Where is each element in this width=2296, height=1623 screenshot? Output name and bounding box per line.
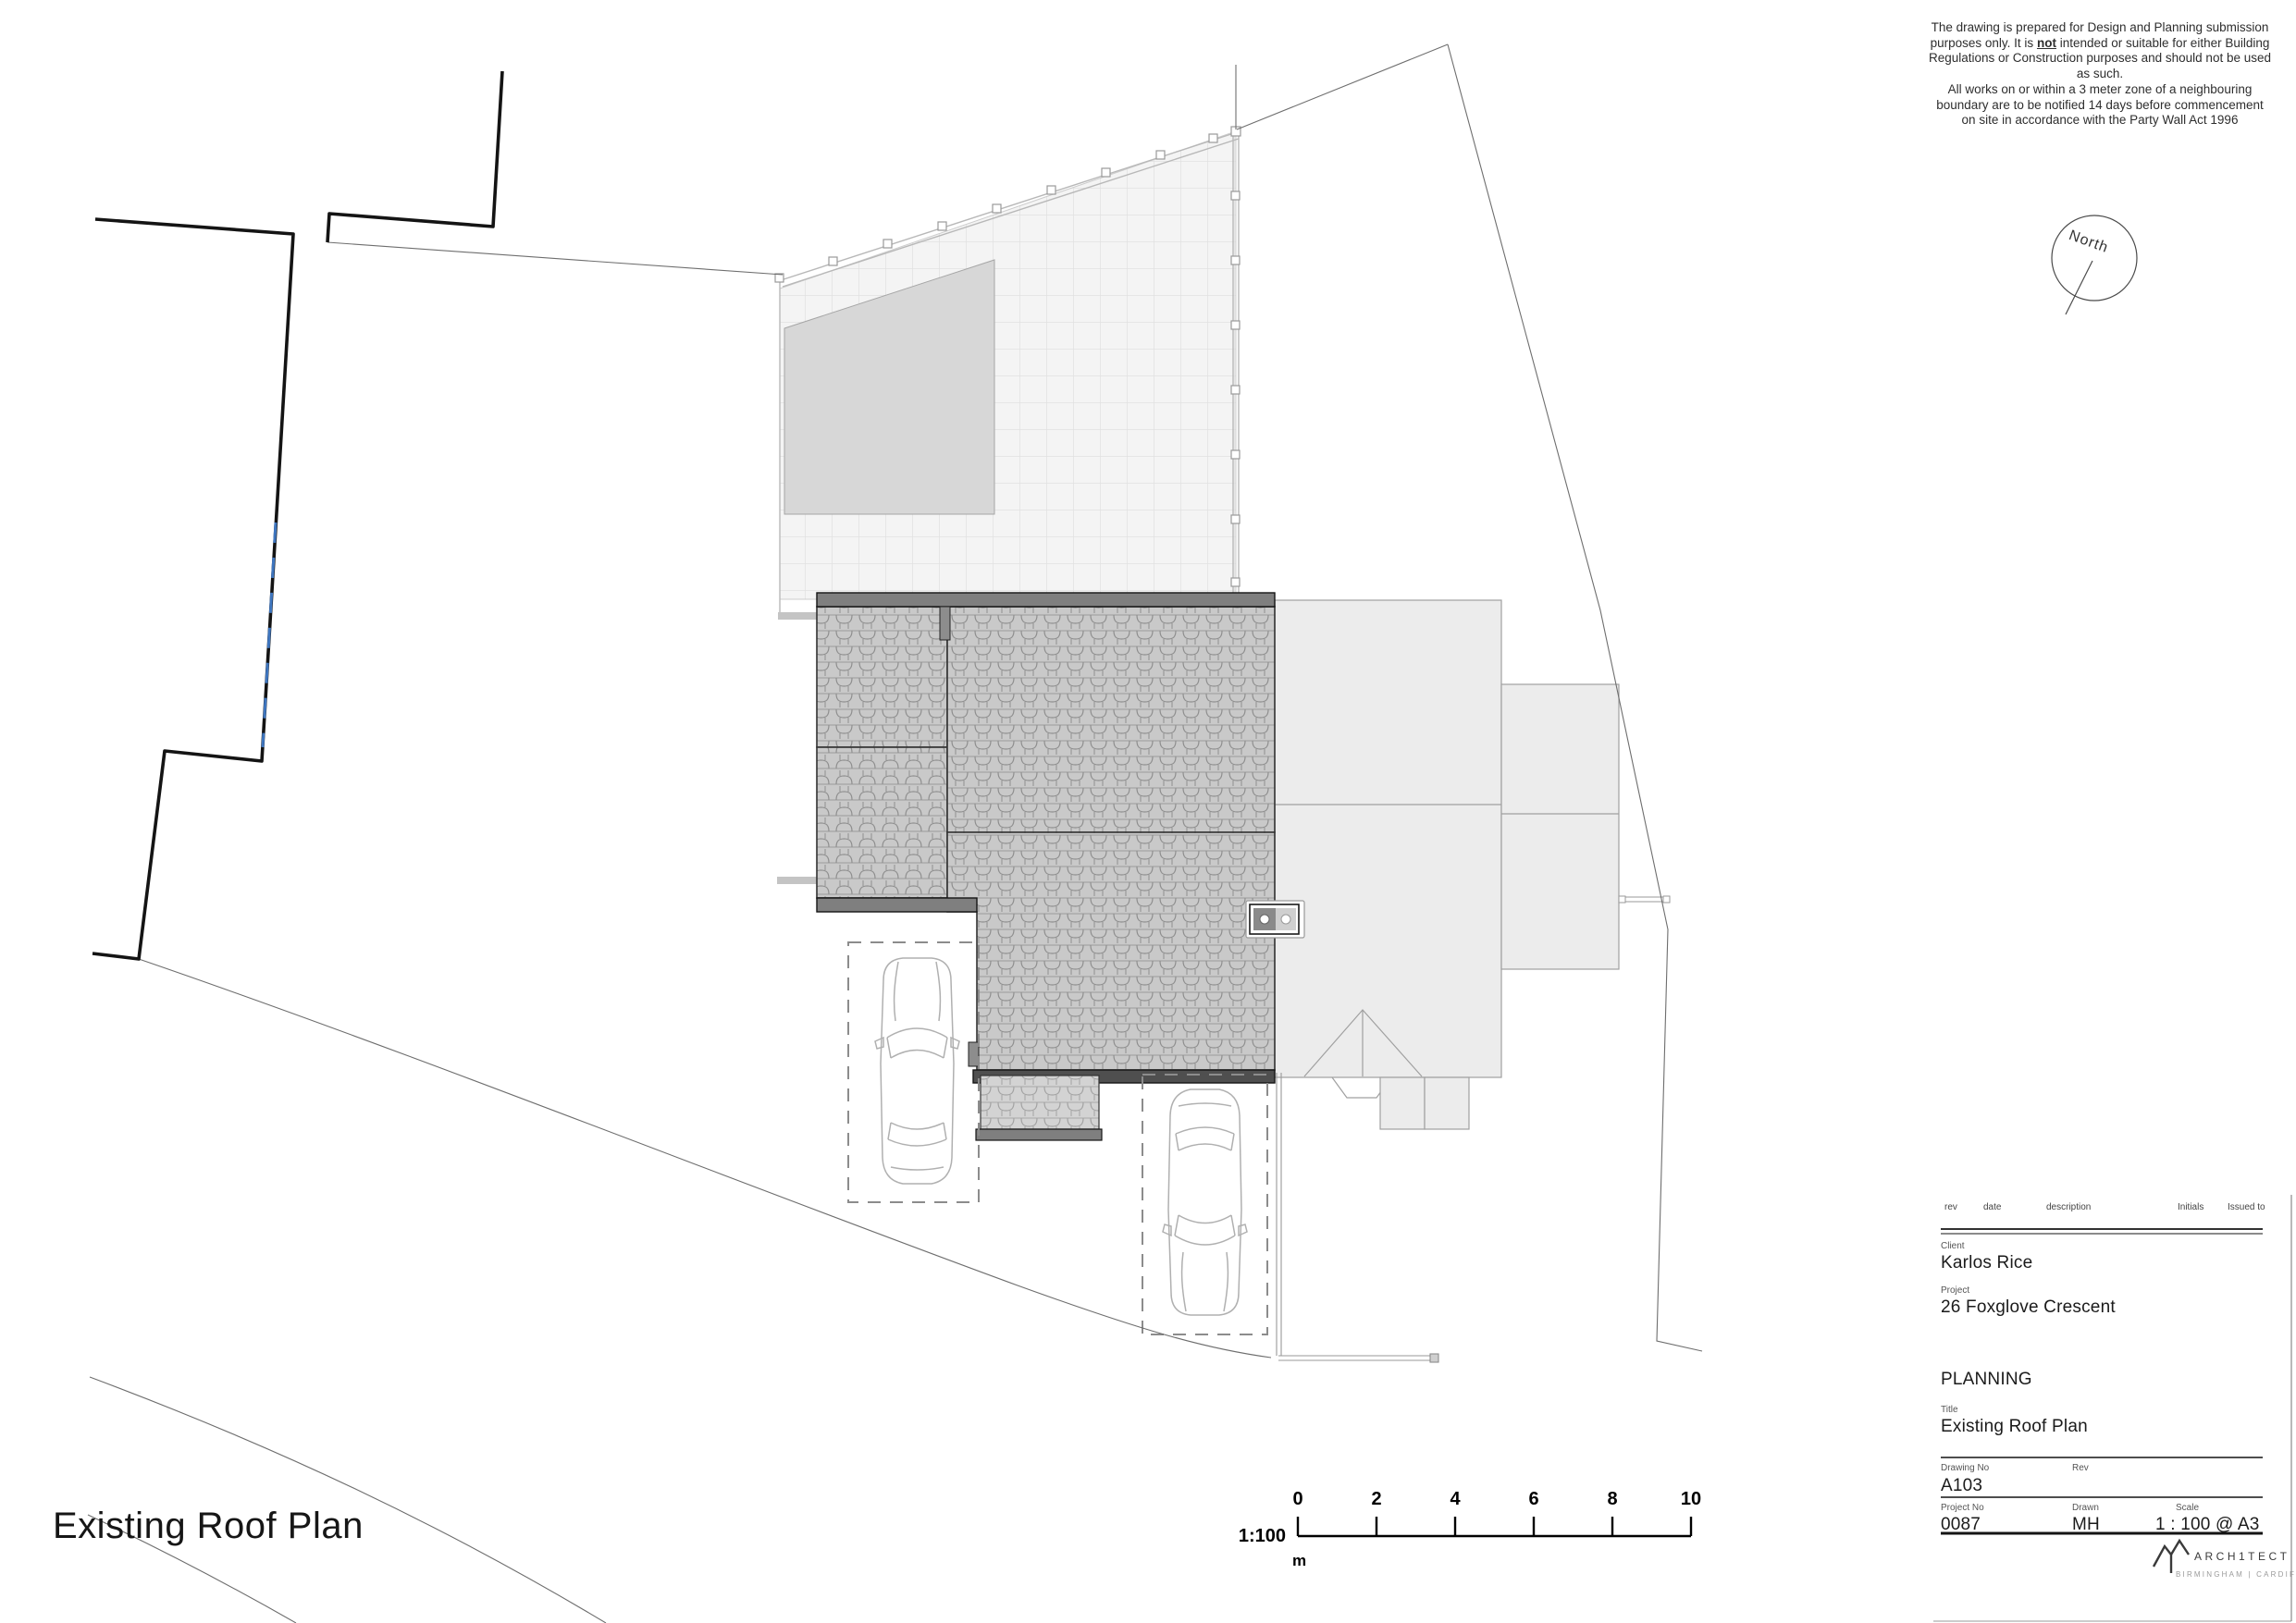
scale-tick-label: 0 [1270, 1489, 1326, 1510]
project-no-value: 0087 [1941, 1515, 1981, 1535]
roof-vent [940, 607, 950, 640]
scale-tick-label: 2 [1349, 1489, 1404, 1510]
neighbour-building [1275, 600, 1670, 1129]
property-boundary [93, 71, 502, 959]
roof-fascia-left [817, 898, 977, 912]
scale-tick-label: 8 [1585, 1489, 1640, 1510]
car [1163, 1089, 1247, 1315]
scale-ratio: 1:100 [1203, 1526, 1286, 1547]
scale-tick-label: 10 [1663, 1489, 1719, 1510]
project-value: 26 Foxglove Crescent [1941, 1297, 2116, 1318]
porch-roof [981, 1076, 1099, 1129]
scale-label: Scale [2176, 1503, 2199, 1513]
roof-vent [969, 1042, 979, 1066]
scale-tick-label: 4 [1427, 1489, 1483, 1510]
porch-fascia [976, 1129, 1102, 1140]
rev-label: Rev [2072, 1463, 2089, 1473]
drawn-label: Drawn [2072, 1503, 2099, 1513]
sheet-title: Existing Roof Plan [53, 1506, 364, 1547]
scale-unit: m [1292, 1552, 1306, 1570]
disclaimer-note: The drawing is prepared for Design and P… [1928, 20, 2272, 129]
title-value: Existing Roof Plan [1941, 1417, 2088, 1437]
north-arrow-icon [2052, 215, 2137, 314]
initials-header: Initials [2178, 1202, 2203, 1212]
architect-logo-icon [2154, 1541, 2189, 1573]
description-header: description [2046, 1202, 2091, 1212]
project-label: Project [1941, 1285, 1969, 1296]
title-label: Title [1941, 1405, 1958, 1415]
client-value: Karlos Rice [1941, 1253, 2032, 1273]
disclaimer-not: not [2037, 36, 2056, 50]
issued-to-header: Issued to [2228, 1202, 2265, 1212]
scale-bar [1298, 1517, 1691, 1536]
drawing-no-value: A103 [1941, 1476, 1982, 1496]
logo-text: ARCH1TECT [2194, 1550, 2290, 1563]
project-no-label: Project No [1941, 1503, 1984, 1513]
date-header: date [1983, 1202, 2001, 1212]
stage-value: PLANNING [1941, 1370, 2032, 1390]
disclaimer-part3: All works on or within a 3 meter zone of… [1936, 82, 2263, 127]
drawing-sheet: The drawing is prepared for Design and P… [0, 0, 2296, 1623]
drawing-no-label: Drawing No [1941, 1463, 1989, 1473]
scale-value: 1 : 100 @ A3 [2155, 1515, 2260, 1535]
logo-subtext: BIRMINGHAM | CARDIFF [2176, 1570, 2296, 1579]
client-label: Client [1941, 1241, 1965, 1251]
rev-header: rev [1944, 1202, 1957, 1212]
car [875, 958, 959, 1184]
roof-fascia-top [817, 593, 1275, 607]
scale-tick-label: 6 [1506, 1489, 1562, 1510]
chimney [1246, 901, 1304, 938]
drawn-value: MH [2072, 1515, 2100, 1535]
